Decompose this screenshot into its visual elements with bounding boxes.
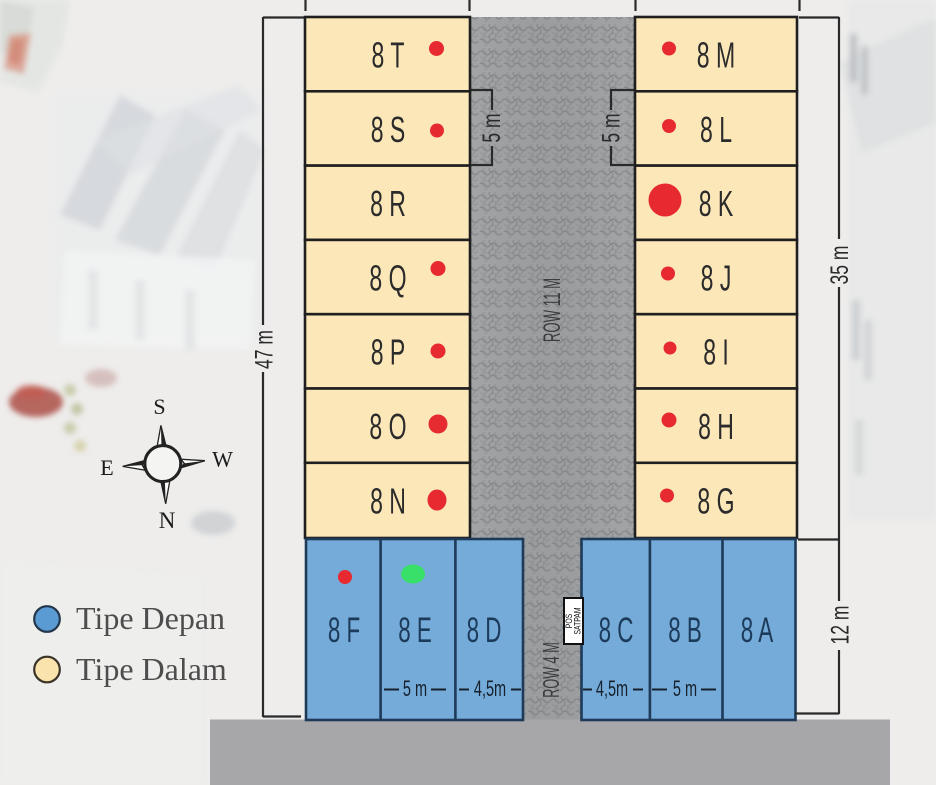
svg-text:8 C: 8 C [599, 611, 634, 650]
svg-text:8 E: 8 E [398, 611, 432, 650]
svg-text:W: W [212, 447, 233, 472]
svg-text:8 B: 8 B [668, 611, 702, 650]
svg-text:8 G: 8 G [697, 482, 734, 521]
svg-text:8 N: 8 N [370, 482, 406, 521]
svg-text:8 I: 8 I [703, 334, 729, 373]
svg-text:12 m: 12 m [825, 606, 854, 645]
svg-text:47 m: 47 m [249, 330, 278, 369]
svg-text:4,5m: 4,5m [596, 676, 628, 701]
svg-text:8 T: 8 T [372, 37, 405, 76]
svg-text:8 R: 8 R [370, 185, 406, 224]
svg-text:5 m: 5 m [673, 676, 697, 701]
svg-text:Tipe Dalam: Tipe Dalam [76, 651, 227, 687]
svg-text:SATPAM: SATPAM [572, 607, 582, 634]
svg-text:8 P: 8 P [371, 334, 406, 373]
svg-text:8 A: 8 A [741, 611, 774, 650]
svg-text:ROW 11 M: ROW 11 M [539, 278, 566, 342]
svg-text:S: S [153, 394, 165, 419]
svg-text:N: N [159, 508, 176, 533]
svg-text:8 J: 8 J [701, 259, 732, 298]
svg-text:ROW 4 M: ROW 4 M [538, 642, 564, 697]
svg-text:5 m: 5 m [477, 113, 506, 142]
svg-text:8 D: 8 D [467, 611, 502, 650]
svg-text:8 L: 8 L [700, 111, 732, 150]
svg-text:8 O: 8 O [369, 408, 406, 447]
svg-text:8 S: 8 S [371, 111, 406, 150]
svg-text:5 m: 5 m [403, 676, 427, 701]
svg-text:8 F: 8 F [328, 611, 360, 650]
svg-text:8 H: 8 H [698, 408, 734, 447]
svg-text:8 K: 8 K [699, 185, 734, 224]
svg-text:35 m: 35 m [825, 246, 854, 285]
svg-text:5 m: 5 m [596, 113, 625, 142]
svg-text:Tipe Depan: Tipe Depan [76, 600, 225, 636]
svg-text:4,5m: 4,5m [474, 676, 506, 701]
svg-text:8 Q: 8 Q [369, 259, 406, 298]
svg-text:E: E [100, 455, 113, 480]
svg-text:8 M: 8 M [697, 37, 735, 76]
